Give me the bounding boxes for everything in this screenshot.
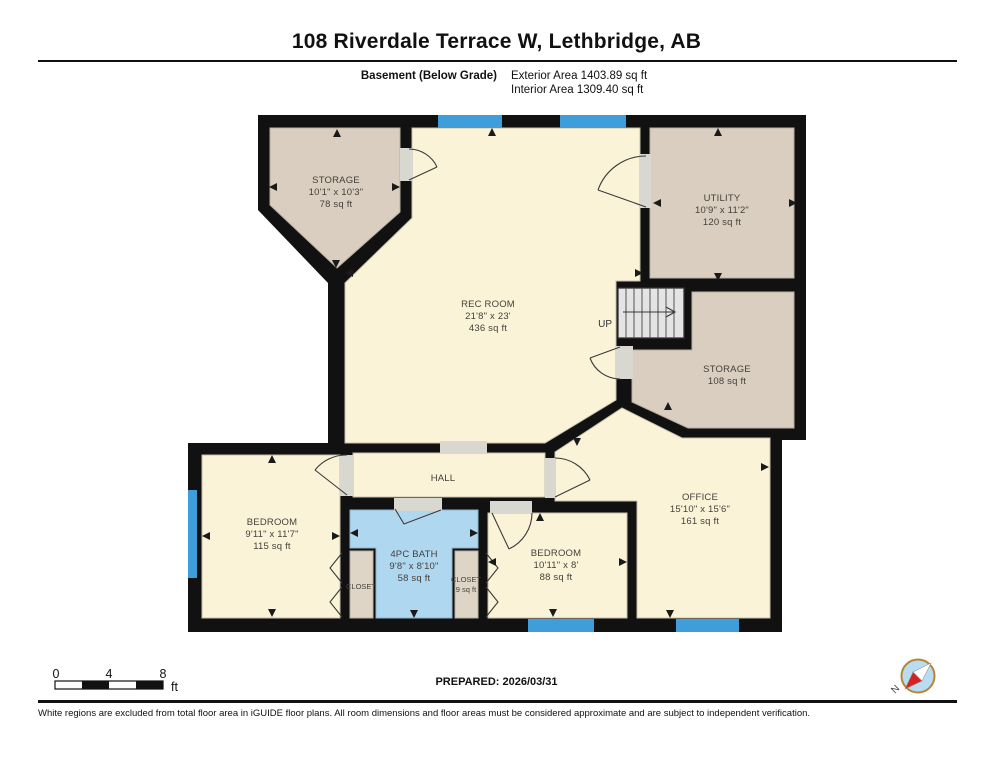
label-storage-top-name: STORAGE [312,175,360,186]
floorplan-svg: STORAGE 10'1" x 10'3" 78 sq ft REC ROOM … [0,0,993,768]
label-bath-name: 4PC BATH [390,549,437,560]
label-bath-area: 58 sq ft [398,573,431,584]
label-utility-name: UTILITY [704,193,741,204]
stairs [618,288,684,338]
label-office-area: 161 sq ft [681,516,719,527]
label-office-dims: 15'10" x 15'6" [670,504,730,515]
label-hall: HALL [431,473,456,484]
window-bottom-1 [528,619,594,632]
label-rec-dims: 21'8" x 23' [465,311,511,322]
label-stairs-up: UP [598,319,612,330]
label-bedroom-left-dims: 9'11" x 11'7" [245,529,298,540]
label-closet-left: CLOSET [346,582,376,591]
label-storage-top-area: 78 sq ft [320,199,353,210]
label-bedroom-mid-area: 88 sq ft [540,572,573,583]
label-storage-top-dims: 10'1" x 10'3" [309,187,364,198]
label-bedroom-left-name: BEDROOM [247,517,298,528]
label-closet-right-area: 9 sq ft [456,585,477,594]
disclaimer-text: White regions are excluded from total fl… [38,708,957,719]
label-closet-right-name: CLOSET [451,575,481,584]
label-storage-right-name: STORAGE [703,364,751,375]
window-top-1 [438,115,502,128]
window-left [188,490,197,578]
label-utility-area: 120 sq ft [703,217,741,228]
label-rec-area: 436 sq ft [469,323,507,334]
label-utility-dims: 10'9" x 11'2" [695,205,749,216]
label-bedroom-left-area: 115 sq ft [253,541,291,552]
label-rec-name: REC ROOM [461,299,515,310]
label-bedroom-mid-name: BEDROOM [531,548,582,559]
window-top-2 [560,115,626,128]
label-bath-dims: 9'8" x 8'10" [389,561,438,572]
prepared-date: PREPARED: 2026/03/31 [0,676,993,688]
label-office-name: OFFICE [682,492,718,503]
footer-divider [38,700,957,703]
label-bedroom-mid-dims: 10'11" x 8' [534,560,579,571]
label-storage-right-area: 108 sq ft [708,376,746,387]
window-bottom-2 [676,619,739,632]
